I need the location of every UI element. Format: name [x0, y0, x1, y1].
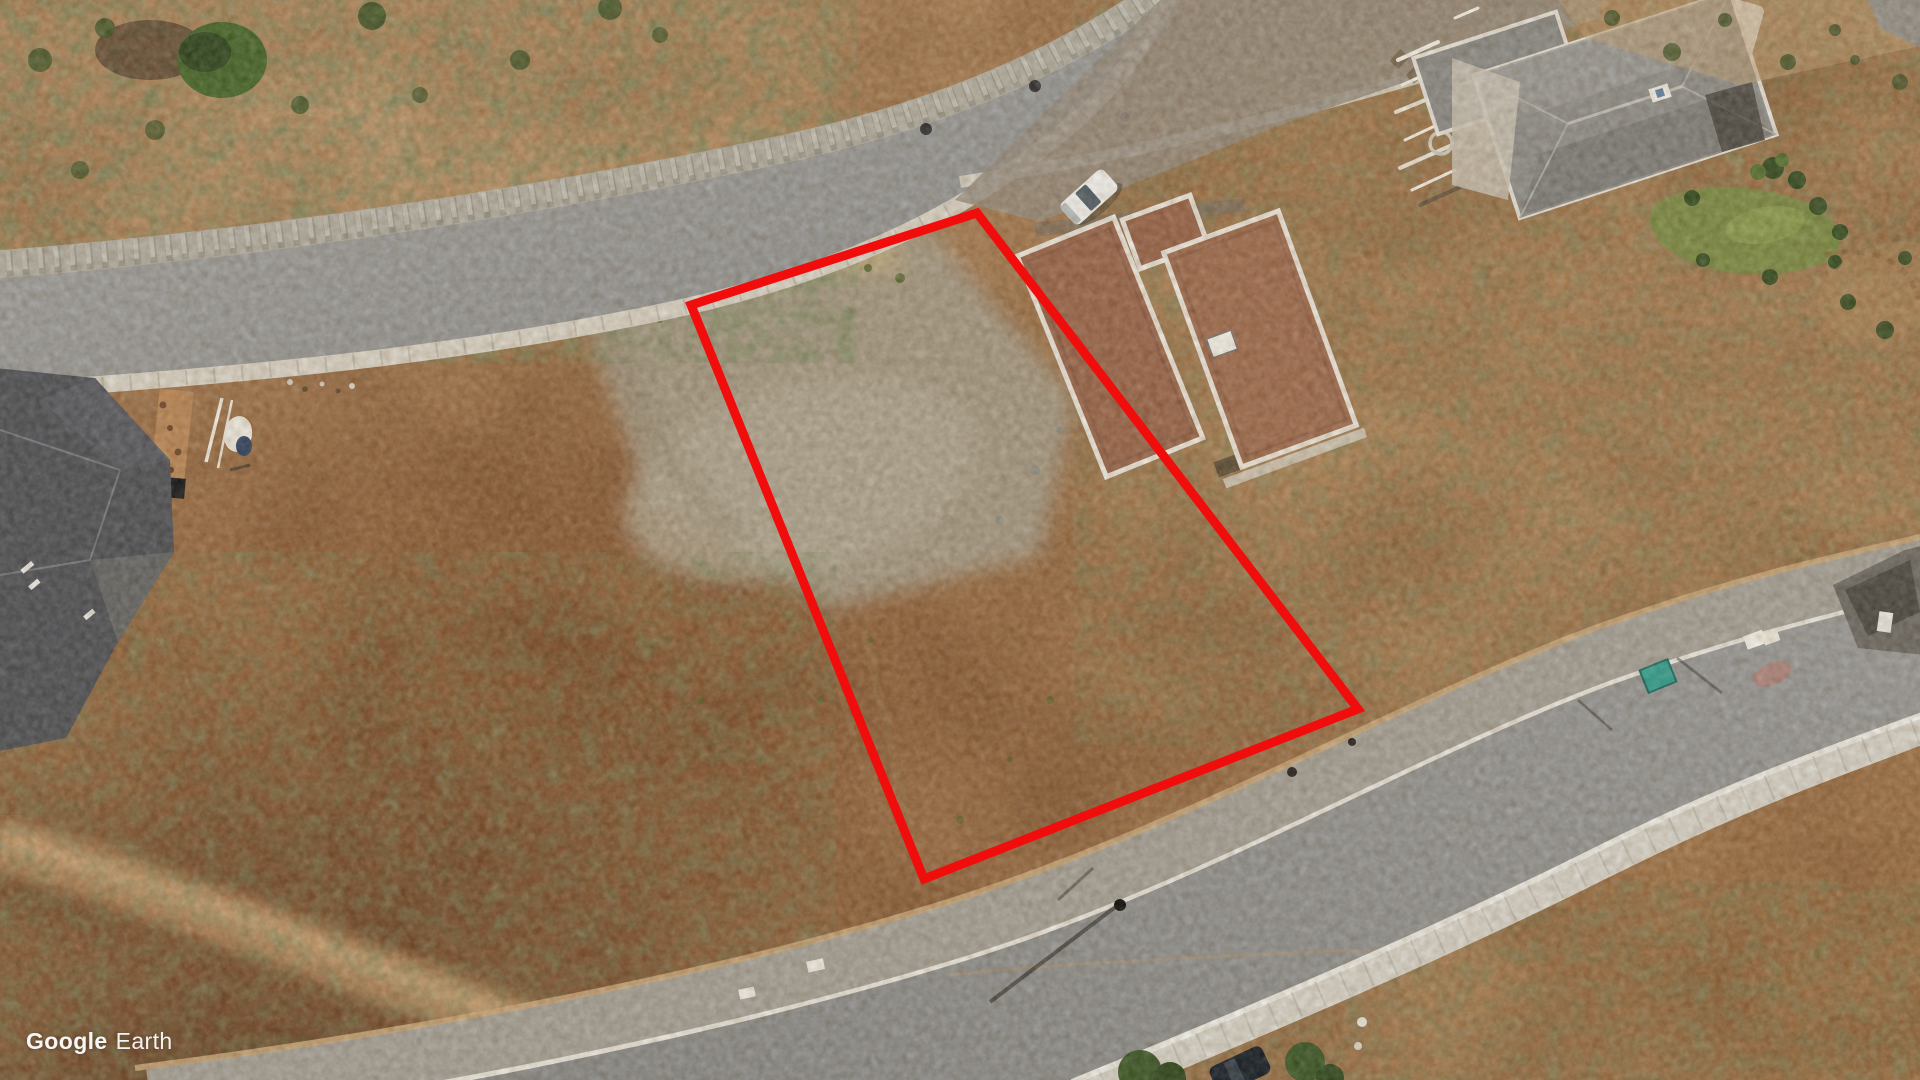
- google-earth-satellite-view[interactable]: GoogleEarth: [0, 0, 1920, 1080]
- aerial-scene: [0, 0, 1920, 1080]
- watermark-brand: Google: [26, 1028, 108, 1055]
- photo-grain: [0, 0, 1920, 1080]
- google-earth-watermark: GoogleEarth: [26, 1028, 173, 1055]
- watermark-product: Earth: [116, 1028, 173, 1055]
